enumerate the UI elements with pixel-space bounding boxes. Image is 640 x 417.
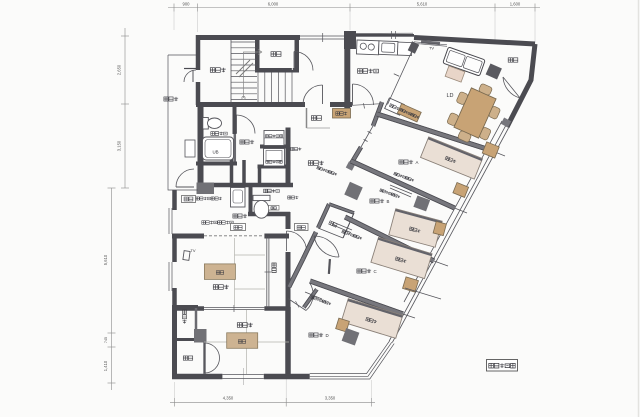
svg-text:1,600: 1,600 — [510, 2, 521, 7]
svg-text:5,610: 5,610 — [103, 254, 108, 265]
svg-text:3,350: 3,350 — [325, 396, 336, 401]
svg-text:5,610: 5,610 — [417, 2, 428, 7]
svg-text:B: B — [387, 199, 390, 204]
svg-text:UB: UB — [212, 150, 218, 155]
svg-text:2,650: 2,650 — [117, 64, 122, 75]
svg-text:C: C — [374, 269, 377, 274]
svg-text:LD: LD — [446, 93, 453, 99]
svg-text:745: 745 — [104, 337, 108, 343]
svg-text:900: 900 — [183, 2, 191, 7]
svg-text:3,150: 3,150 — [117, 140, 122, 151]
svg-text:6,000: 6,000 — [268, 2, 279, 7]
svg-text:1,410: 1,410 — [103, 360, 108, 371]
svg-text:TV: TV — [190, 248, 195, 253]
svg-text:A: A — [416, 160, 419, 165]
svg-text:TV: TV — [429, 46, 434, 51]
svg-text:4,350: 4,350 — [223, 396, 234, 401]
svg-text:D: D — [326, 333, 329, 338]
